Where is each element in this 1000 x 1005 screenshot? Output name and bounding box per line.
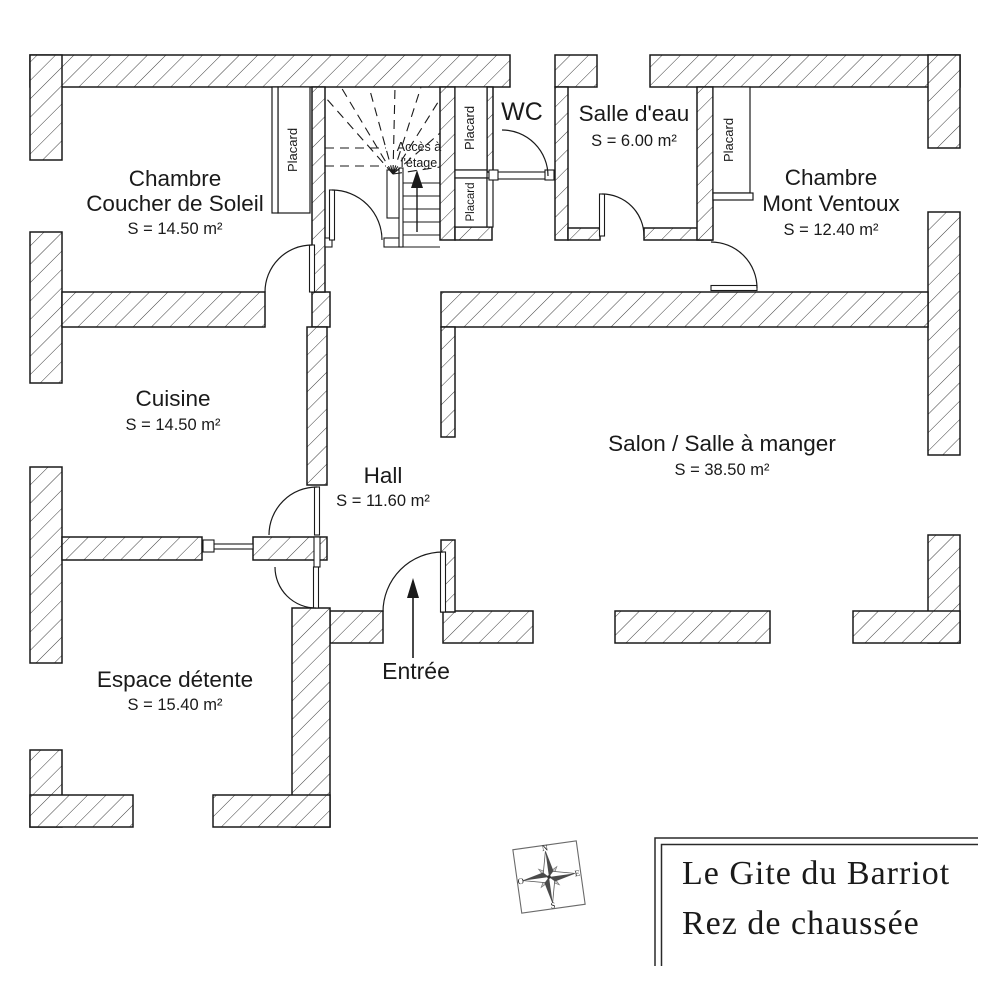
room-area: S = 14.50 m² bbox=[126, 416, 221, 434]
door-chambre1 bbox=[265, 245, 315, 292]
room-wc: WC bbox=[501, 98, 543, 126]
door-cuisine bbox=[269, 487, 320, 535]
door-salle-d-eau bbox=[600, 194, 645, 236]
room-area: S = 12.40 m² bbox=[784, 221, 879, 239]
room-name: Chambre bbox=[785, 165, 878, 190]
room-chambre-mont-ventoux: Chambre Mont Ventoux S = 12.40 m² bbox=[762, 165, 900, 239]
stairs-access-label-1: Accès à bbox=[397, 140, 442, 154]
entrance: Entrée bbox=[382, 578, 450, 684]
room-area: S = 6.00 m² bbox=[591, 132, 677, 150]
stairs-up-arrow-icon bbox=[411, 170, 423, 232]
closet-label: Placard bbox=[285, 128, 300, 172]
door-wc bbox=[489, 130, 554, 180]
doors bbox=[265, 130, 757, 612]
door-stairs bbox=[330, 190, 383, 240]
floor-plan-drawing: Placard Placard Placard Placard bbox=[0, 0, 1000, 1000]
room-area: S = 14.50 m² bbox=[128, 220, 223, 238]
room-name: Hall bbox=[364, 463, 403, 488]
closet-label: Placard bbox=[462, 106, 477, 150]
room-name: Mont Ventoux bbox=[762, 191, 900, 216]
sliding-door bbox=[202, 540, 253, 552]
room-name: Salon / Salle à manger bbox=[608, 431, 836, 456]
room-area: S = 38.50 m² bbox=[675, 461, 770, 479]
room-name: Cuisine bbox=[135, 386, 210, 411]
room-name: Coucher de Soleil bbox=[86, 191, 264, 216]
room-salle-d-eau: Salle d'eau S = 6.00 m² bbox=[579, 101, 690, 150]
closet-hall-lower: Placard bbox=[455, 178, 493, 227]
room-espace-detente: Espace détente S = 15.40 m² bbox=[97, 667, 253, 714]
compass-rose-icon: N E S O bbox=[513, 838, 586, 914]
closet-hall-upper: Placard bbox=[455, 87, 487, 178]
compass-north-label: N bbox=[541, 842, 548, 853]
room-hall: Hall S = 11.60 m² bbox=[336, 463, 430, 510]
staircase: Accès à l'étage bbox=[325, 87, 441, 247]
room-cuisine: Cuisine S = 14.50 m² bbox=[126, 386, 221, 434]
room-salon: Salon / Salle à manger S = 38.50 m² bbox=[608, 431, 836, 479]
door-espace-detente bbox=[275, 567, 319, 608]
room-name: Chambre bbox=[129, 166, 222, 191]
room-area: S = 15.40 m² bbox=[128, 696, 223, 714]
room-name: WC bbox=[501, 98, 543, 126]
closet-chambre1: Placard bbox=[272, 87, 310, 213]
title-block: Le Gite du Barriot Rez de chaussée bbox=[655, 838, 978, 966]
stairs-access-label-2: l'étage bbox=[401, 156, 437, 170]
closet-chambre2: Placard bbox=[713, 87, 753, 200]
plan-title: Le Gite du Barriot bbox=[682, 855, 950, 892]
door-chambre2 bbox=[711, 242, 757, 291]
closet-label: Placard bbox=[465, 183, 477, 222]
closet-label: Placard bbox=[721, 118, 736, 162]
floor-plan-page: Placard Placard Placard Placard bbox=[0, 0, 1000, 1000]
door-entree bbox=[383, 552, 446, 612]
room-name: Salle d'eau bbox=[579, 101, 690, 126]
plan-subtitle: Rez de chaussée bbox=[682, 905, 920, 942]
room-chambre-coucher-de-soleil: Chambre Coucher de Soleil S = 14.50 m² bbox=[86, 166, 264, 238]
entrance-label: Entrée bbox=[382, 658, 450, 684]
room-area: S = 11.60 m² bbox=[336, 492, 430, 510]
room-name: Espace détente bbox=[97, 667, 253, 692]
entrance-arrow-icon bbox=[407, 578, 419, 658]
